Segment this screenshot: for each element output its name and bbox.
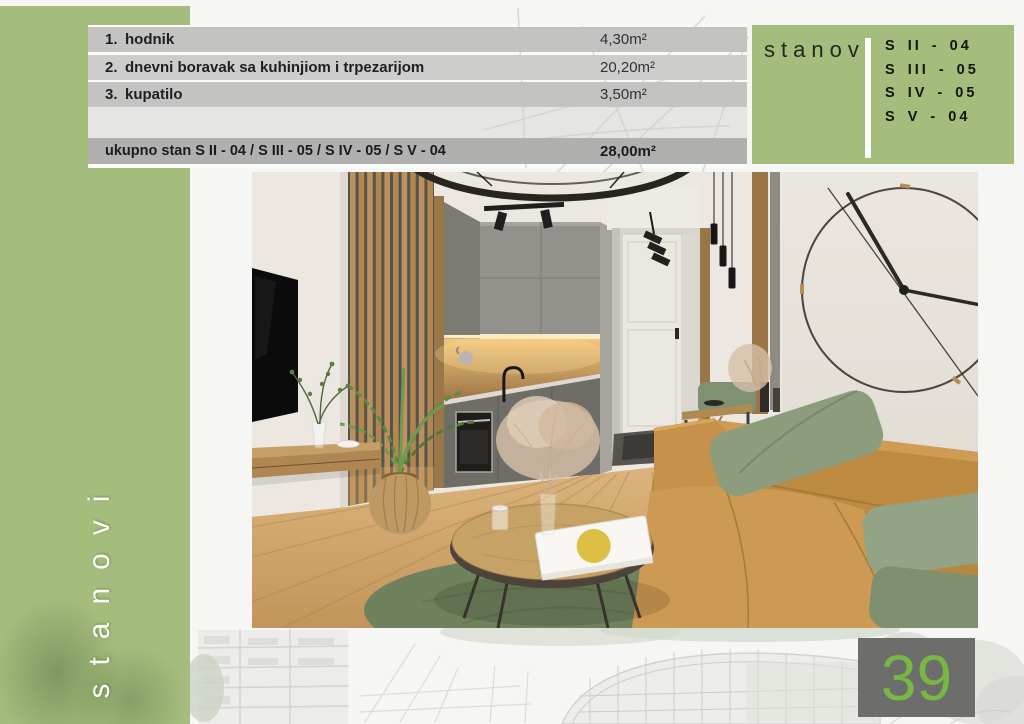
door bbox=[622, 234, 682, 434]
gray-beam bbox=[770, 172, 780, 410]
kettle bbox=[459, 351, 473, 365]
room-table: 1. hodnik 4,30m² 2. dnevni boravak sa ku… bbox=[88, 25, 747, 168]
page-number-box: 39 bbox=[858, 638, 975, 717]
door-handle bbox=[675, 328, 679, 339]
units-panel: stanovi S II - 04 S III - 05 S IV - 05 S… bbox=[752, 25, 1014, 164]
units-panel-title: stanovi bbox=[764, 37, 876, 63]
total-label: ukupno stan S II - 04 / S III - 05 / S I… bbox=[88, 143, 446, 159]
units-divider-line bbox=[865, 38, 871, 158]
glass-vase bbox=[312, 422, 326, 448]
unit-item: S IV - 05 bbox=[885, 82, 979, 106]
pampas-grass bbox=[728, 344, 772, 392]
table-spacer-band bbox=[88, 107, 747, 138]
total-area: 28,00m² bbox=[600, 143, 656, 160]
row-number: 3. bbox=[88, 86, 125, 103]
table-row: 2. dnevni boravak sa kuhinjiom i trpezar… bbox=[88, 55, 747, 80]
bowl bbox=[337, 441, 359, 448]
table-total-row: ukupno stan S II - 04 / S III - 05 / S I… bbox=[88, 138, 747, 164]
row-area: 4,30m² bbox=[600, 31, 647, 48]
row-label: dnevni boravak sa kuhinjiom i trpezarijo… bbox=[125, 59, 424, 76]
vertical-page-title: stanovi bbox=[80, 418, 120, 724]
brochure-page: stanovi bbox=[0, 0, 1024, 724]
unit-item: S II - 04 bbox=[885, 35, 979, 59]
apartment-photo bbox=[252, 172, 978, 628]
units-list: S II - 04 S III - 05 S IV - 05 S V - 04 bbox=[885, 35, 979, 129]
page-number: 39 bbox=[881, 646, 952, 710]
unit-item: S III - 05 bbox=[885, 59, 979, 83]
row-number: 1. bbox=[88, 31, 125, 48]
row-label: kupatilo bbox=[125, 86, 183, 103]
table-row: 1. hodnik 4,30m² bbox=[88, 27, 747, 52]
row-area: 20,20m² bbox=[600, 59, 655, 76]
table-row: 3. kupatilo 3,50m² bbox=[88, 82, 747, 107]
row-label: hodnik bbox=[125, 31, 174, 48]
woven-basket bbox=[369, 474, 431, 534]
tv bbox=[252, 268, 298, 422]
water-glass bbox=[492, 505, 508, 530]
unit-item: S V - 04 bbox=[885, 106, 979, 130]
row-number: 2. bbox=[88, 59, 125, 76]
row-area: 3,50m² bbox=[600, 86, 647, 103]
